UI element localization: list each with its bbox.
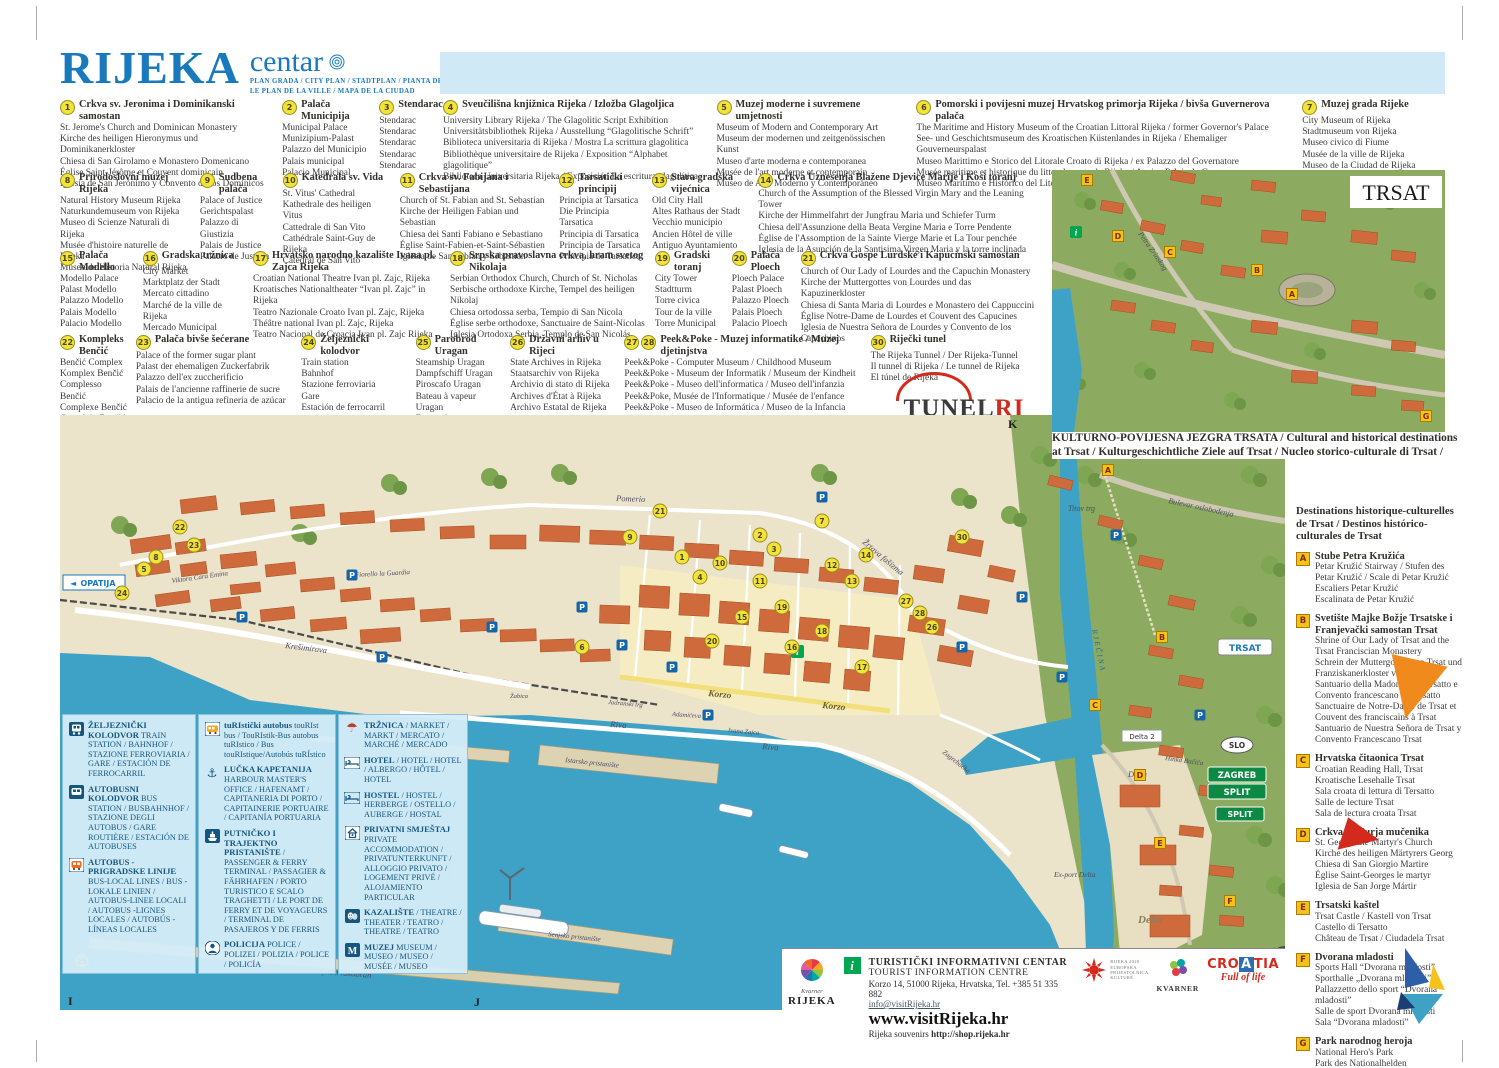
legend-number-badges: 3 (379, 100, 394, 115)
number-badge: 14 (758, 173, 773, 188)
svg-text:12: 12 (827, 561, 837, 570)
trsat-item-translations: National Hero's ParkPark des Nationalhel… (1315, 1048, 1420, 1068)
legend-translation-line: Biblioteca universitaria di Rijeka / Mos… (443, 138, 708, 149)
legend-item-title: Crkva sv. Jeronima i Dominikanski samost… (79, 99, 274, 122)
legend-translation-line: Natural History Museum Rijeka (60, 196, 192, 207)
croatia-slogan: Full of life (1207, 972, 1279, 983)
legend-number-badges: 2 (282, 100, 297, 115)
legend-translation-line: Palace of Justice (200, 196, 275, 207)
tic-title-hr: TURISTIČKI INFORMATIVNI CENTAR (869, 957, 1072, 968)
legend-item-title: Crkva Uznesenja Blažene Djevice Marije i… (777, 172, 1016, 184)
kvarner-rijeka-logo: Kvarner RIJEKA (788, 957, 836, 1007)
legend-translation-line: Chiesa di San Girolamo e Monastero Domen… (60, 157, 274, 168)
svg-text:P: P (1019, 593, 1025, 602)
number-badge: 6 (916, 100, 931, 115)
trsat-inset-map: TRSAT Petra Zrinskog i EDCBAG (1052, 170, 1445, 432)
legend-number-badges: 18 (450, 251, 465, 266)
svg-text:◄: ◄ (70, 579, 77, 588)
svg-text:C: C (1092, 701, 1098, 710)
legend-translation-line: Altes Rathaus der Stadt (652, 207, 750, 218)
svg-text:15: 15 (737, 613, 747, 622)
legend-translation-line: The Maritime and History Museum of the C… (916, 123, 1294, 134)
svg-text:13: 13 (847, 577, 857, 586)
legend-translation-line: Archivo Estatal de Rijeka (510, 403, 616, 414)
number-badge: 9 (200, 173, 215, 188)
tic-title-en: TOURIST INFORMATION CENTRE (869, 968, 1072, 978)
legend-translation-line: Universitätsbibliothek Rijeka / Ausstell… (443, 127, 708, 138)
localbus-icon (68, 858, 84, 873)
trsat-item-title: Park narodnog heroja (1315, 1036, 1420, 1048)
trsat-heading-line2: at Trsat / Kulturgeschichtliche Ziele au… (1052, 446, 1460, 460)
legend-number-badges: 30 (871, 335, 886, 350)
legend-item: 17 Hrvatsko narodno kazalište Ivana pl. … (253, 250, 450, 345)
svg-text:OPATIJA: OPATIJA (80, 579, 116, 588)
legend-translation-line: Estación de ferrocarril (301, 403, 407, 414)
legend-translation-line: Museo Marittimo e Storico del Litorale C… (916, 157, 1294, 168)
key-item-text: HARBOUR MASTER'S OFFICE / HAFENAMT / CAP… (224, 775, 329, 822)
legend-translation-line: Kathedrale des heiligen Vitus (283, 200, 392, 222)
legend-translation-line: City Museum of Rijeka (1302, 116, 1440, 127)
map-key-item: PUTNIČKO I TRAJEKTNO PRISTANIŠTE / PASSE… (204, 829, 330, 935)
svg-text:I: I (68, 994, 73, 1008)
legend-item-title: Željeznički kolodvor (320, 334, 407, 357)
legend-item: 20 Palača Ploech Ploech PalacePalast Plo… (732, 250, 801, 345)
legend-translation-line: Peek&Poke, Musée de l'Informatique / Mus… (624, 392, 862, 403)
legend-translation-line: Komplex Benčić (60, 369, 128, 380)
opatija-sign: ◄ OPATIJA (63, 575, 125, 590)
legend-item-translations: Serbian Orthodox Church, Church of St. N… (450, 274, 647, 341)
legend-translation-line: Marktplatz der Stadt (143, 278, 245, 289)
number-badge: 11 (400, 173, 415, 188)
map-key-item: M MUZEJ MUSEUM / MUSEO / MUSEO / MUSÉE /… (344, 943, 462, 972)
trsat-translation-line: Escaliers Petar Kružić (1315, 584, 1462, 595)
trsat-panel-subheading: Destinations historique-culturelles de T… (1296, 505, 1462, 543)
legend-translation-line: Mercato cittadino (143, 289, 245, 300)
svg-text:2: 2 (757, 531, 762, 540)
legend-item-translations: Municipal PalaceMunizipium-PalastPalazzo… (282, 123, 371, 179)
legend-number-badges: 21 (801, 251, 816, 266)
number-badge: 22 (60, 335, 75, 350)
legend-item-title: Palača Ploech (751, 250, 793, 273)
legend-item: 21 Crkva Gospe Lurdske i Kapucinski samo… (801, 250, 1045, 345)
inset-title: TRSAT (1362, 180, 1430, 205)
trsat-item-translations: Trsat Castle / Kastell von TrsatCastello… (1315, 912, 1444, 945)
keybox-harbour: tuRIstički autobus touRIst bus / TouRIst… (198, 714, 336, 974)
svg-text:17: 17 (857, 663, 867, 672)
hostel-icon (344, 791, 360, 806)
number-badge: 19 (655, 251, 670, 266)
legend-translation-line: Palacio de la antigua refineria de azúca… (136, 396, 293, 407)
legend-translation-line: Kroatisches Nationaltheater “Ivan pl. Za… (253, 285, 442, 307)
key-item-title: KAZALIŠTE (364, 907, 414, 917)
legend-translation-line: Gare (301, 392, 407, 403)
legend-translation-line: Bahnhof (301, 369, 407, 380)
legend-translation-line: Complesso Benčić (60, 380, 128, 402)
legend-item-title: Palača bivše šećerane (155, 334, 249, 346)
legend-translation-line: Peek&Poke - Museo dell'informatica / Mus… (624, 380, 862, 391)
trsat-translation-line: Chiesa di San Giorgio Martire (1315, 860, 1453, 871)
legend-number-badges: 9 (200, 173, 215, 188)
svg-text:Žabica: Žabica (510, 692, 528, 700)
legend-translation-line: St. Jerome's Church and Dominican Monast… (60, 123, 274, 134)
key-item-title: AUTOBUS - PRIGRADSKE LINIJE (88, 857, 176, 877)
legend-number-badges: 5 (717, 100, 732, 115)
legend-item-translations: City Museum of RijekaStadtmuseum von Rij… (1302, 116, 1440, 172)
svg-text:K: K (1008, 417, 1018, 431)
svg-text:Ex-port Delta: Ex-port Delta (1053, 870, 1096, 879)
trsat-item: C Hrvatska čitaonica Trsat Croatian Read… (1296, 753, 1462, 820)
legend-translation-line: Piroscafo Uragan (416, 380, 503, 391)
legend-translation-line: Palacio Ploech (732, 319, 793, 330)
legend-item-title: Riječki tunel (890, 334, 946, 346)
legend-item: 18 Srpska pravoslavna crkva, hram svetog… (450, 250, 655, 345)
svg-text:ZAGREB: ZAGREB (1218, 771, 1257, 781)
legend-translation-line: Tour de la ville (655, 308, 724, 319)
sails-logo (1385, 948, 1457, 1026)
svg-text:E: E (1157, 839, 1162, 848)
svg-text:Delta: Delta (1137, 914, 1163, 926)
svg-text:26: 26 (927, 623, 937, 632)
legend-number-badges: 4 (443, 100, 458, 115)
legend-item-translations: StendaracStendaracStendaracStendaracSten… (379, 116, 435, 172)
letter-badge: E (1296, 901, 1310, 915)
info-centre-icon: i (844, 957, 861, 974)
svg-text:TRSAT: TRSAT (1229, 644, 1262, 654)
svg-text:M: M (347, 946, 357, 957)
svg-text:21: 21 (655, 507, 665, 516)
legend-translation-line: Peek&Poke - Computer Museum / Childhood … (624, 358, 862, 369)
number-badge: 1 (60, 100, 75, 115)
letter-badge: G (1296, 1037, 1310, 1051)
legend-translation-line: Palazzo Modello (60, 296, 135, 307)
legend-item-title: Stendarac (398, 99, 443, 111)
legend-translation-line: Dampfschiff Uragan (416, 369, 503, 380)
delta2-sign: Delta 2 (1122, 730, 1162, 742)
legend-translation-line: See- und Geschichtsmuseum des Kroatische… (916, 134, 1294, 156)
svg-text:9: 9 (627, 533, 632, 542)
svg-text:P: P (1113, 531, 1119, 540)
legend-number-badges: 13 (652, 173, 667, 188)
legend-item-title: Muzej grada Rijeke (1321, 99, 1409, 111)
legend-translation-line: Vecchio municipio (652, 218, 750, 229)
svg-text:20: 20 (707, 637, 717, 646)
number-badge: 23 (136, 335, 151, 350)
letter-badge: C (1296, 754, 1310, 768)
legend-translation-line: Cattedrale di San Vito (283, 223, 392, 234)
trsat-translation-line: Kirche des heiligen Märtyrers Georg (1315, 849, 1453, 860)
legend-translation-line: Chiesa dei Santi Fabiano e Sebastiano (400, 230, 552, 241)
svg-text:G: G (1423, 412, 1430, 421)
map-key-item: tuRIstički autobus touRIst bus / TouRIst… (204, 721, 330, 759)
legend-translation-line: Kirche der Heiligen Fabian und Sebastian (400, 207, 552, 229)
legend-item-translations: Church of the Assumption of the Blessed … (758, 189, 1037, 256)
legend-number-badges: 26 (510, 335, 525, 350)
legend-translation-line: Kirche des heiligen Hieronymus und Domin… (60, 134, 274, 156)
legend-translation-line: Palazzo Ploech (732, 296, 793, 307)
legend-translation-line: Palais de l'ancienne raffinerie de sucre (136, 385, 293, 396)
legend-number-badges: 1 (60, 100, 75, 115)
trsat-item-title: Trsatski kaštel (1315, 900, 1444, 912)
trsat-translation-line: Sala de lectura croata Trsat (1315, 809, 1434, 820)
number-badge: 2 (282, 100, 297, 115)
number-badge: 24 (301, 335, 316, 350)
legend-translation-line: Palais Ploech (732, 308, 793, 319)
tic-website: www.visitRijeka.hr (869, 1009, 1009, 1028)
svg-text:P: P (239, 613, 245, 622)
legend-translation-line: Stendarac (379, 150, 435, 161)
svg-text:SPLIT: SPLIT (1224, 788, 1251, 798)
number-badge: 16 (143, 251, 158, 266)
svg-text:P: P (959, 643, 965, 652)
legend-translation-line: Museo civico di Fiume (1302, 138, 1440, 149)
tic-text-block: TURISTIČKI INFORMATIVNI CENTAR TOURIST I… (869, 957, 1072, 1039)
legend-item-title: Parobrod Uragan (435, 334, 503, 357)
svg-text:23: 23 (189, 541, 199, 550)
legend-translation-line: Ploech Palace (732, 274, 793, 285)
legend-item-title: Palača Municipija (301, 99, 371, 122)
key-item-title: tuRIstički autobus (224, 720, 292, 730)
legend-translation-line: Stadtmuseum von Rijeka (1302, 127, 1440, 138)
legend-item-translations: State Archives in RijekaStaatsarchiv von… (510, 358, 616, 414)
svg-text:SLO: SLO (1229, 741, 1245, 750)
legend-translation-line: Serbische orthodoxe Kirche, Tempel des h… (450, 285, 647, 307)
legend-translation-line: Naturkundemuseum von Rijeka (60, 207, 192, 218)
legend-translation-line: Stendarac (379, 127, 435, 138)
legend-item-title: Srpska pravoslavna crkva, hram svetog Ni… (469, 250, 647, 273)
legend-number-badges: 20 (732, 251, 747, 266)
legend-number-badges: 8 (60, 173, 75, 188)
map-key-item: AUTOBUS - PRIGRADSKE LINIJE BUS-LOCAL LI… (68, 858, 190, 935)
number-badge: 7 (1302, 100, 1317, 115)
legend-translation-line: Steamship Uragan (416, 358, 503, 369)
number-badge: 18 (450, 251, 465, 266)
souvenirs-url: http://shop.rijeka.hr (931, 1029, 1010, 1039)
trsat-translation-line: Kroatische Lesehalle Trsat (1315, 776, 1434, 787)
legend-item-title: Katedrala sv. Vida (302, 172, 384, 184)
svg-text:P: P (1197, 711, 1203, 720)
rijeka-city-map-page: RIJEKA centar PLAN GRADA / CITY PLAN / S… (0, 0, 1499, 1068)
legend-translation-line: Modello Palace (60, 274, 135, 285)
legend-item-translations: Modello PalacePalast ModelloPalazzo Mode… (60, 274, 135, 330)
svg-text:P: P (819, 493, 825, 502)
market-icon: ☂ (344, 721, 360, 736)
legend-translation-line: Complexe Benčić (60, 403, 128, 414)
legend-translation-line: Stendarac (379, 116, 435, 127)
legend-translation-line: Gerichtspalast (200, 207, 275, 218)
legend-item-title: Muzej moderne i suvremene umjetnosti (736, 99, 909, 122)
legend-item: 16 Gradska tržnica City MarketMarktplatz… (143, 250, 253, 345)
legend-translation-line: Bateau à vapeur Uragan (416, 392, 503, 414)
key-item-text: BUS-LOCAL LINES / BUS - LOKALE LINIEN / … (88, 877, 187, 934)
key-item-title: PRIVATNI SMJEŠTAJ (364, 824, 450, 834)
tourist-route-banner (440, 52, 1445, 94)
rijeka-logo-text: RIJEKA (788, 995, 836, 1007)
svg-text:E: E (1084, 176, 1089, 185)
svg-text:B: B (1159, 633, 1165, 642)
trsat-translation-line: St. George the Martyr's Church (1315, 838, 1453, 849)
city-title: RIJEKA (60, 46, 240, 90)
legend-translation-line: Marché de la ville de Rijeka (143, 301, 245, 323)
number-badge: 25 (416, 335, 431, 350)
svg-text:P: P (379, 653, 385, 662)
svg-text:18: 18 (817, 627, 827, 636)
trsat-panel-heading: KULTURNO-POVIJESNA JEZGRA TRSATA / Cultu… (1052, 432, 1460, 459)
legend-translation-line: Palacio Modello (60, 319, 135, 330)
legend-item-title: Hrvatsko narodno kazalište Ivana pl. Zaj… (272, 250, 442, 273)
legend-translation-line: Munizipium-Palast (282, 134, 371, 145)
legend-item-translations: Croatian National Theatre Ivan pl. Zajc,… (253, 274, 442, 341)
crop-mark (36, 6, 37, 40)
kvarner-circle-icon (1167, 957, 1189, 979)
legend-translation-line: Museo d'arte moderna e contemporanea (717, 157, 909, 168)
svg-text:F: F (1227, 897, 1232, 906)
key-item-title: ŽELJEZNIČKI KOLODVOR (88, 720, 147, 740)
legend-item-title: Prirodoslovni muzej Rijeka (79, 172, 192, 195)
key-item-title: HOTEL (364, 755, 395, 765)
legend-translation-line: Palais Modello (60, 308, 135, 319)
trsat-sign: TRSAT (1218, 639, 1272, 655)
map-key-item: POLICIJA POLICE / POLIZEI / POLIZIA / PO… (204, 940, 330, 969)
svg-text:P: P (349, 571, 355, 580)
legend-translation-line: Ancien Hôtel de ville (652, 230, 750, 241)
svg-text:7: 7 (819, 517, 824, 526)
trsat-item-translations: Croatian Reading Hall, TrsatKroatische L… (1315, 765, 1434, 820)
legend-translation-line: Museum der modernen und zeitgenössischen… (717, 134, 909, 156)
split-sign-2: SPLIT (1216, 807, 1264, 821)
key-item-title: POLICIJA (224, 939, 265, 949)
zagreb-sign: ZAGREB (1208, 767, 1266, 782)
trsat-item-title: Svetište Majke Božje Trsatske i Franjeva… (1315, 613, 1462, 636)
trsat-translation-line: Croatian Reading Hall, Trsat (1315, 765, 1434, 776)
svg-text:C: C (1167, 248, 1173, 257)
key-item-title: TRŽNICA (364, 720, 404, 730)
anchor-icon: ⚓ (204, 765, 220, 780)
legend-translation-line: The Rijeka Tunnel / Der Rijeka-Tunnel (871, 351, 1037, 362)
number-badge: 28 (641, 335, 656, 350)
trsat-translation-line: Park des Nationalhelden (1315, 1059, 1420, 1068)
number-badge: 15 (60, 251, 75, 266)
legend-translation-line: Kirche der Muttergottes von Lourdes und … (801, 278, 1037, 300)
touristbus-icon (204, 721, 220, 736)
svg-text:22: 22 (175, 523, 185, 532)
trsat-translation-line: Sala croata di lettura di Tersatto (1315, 787, 1434, 798)
trsat-translation-line: Escalinata de Petar Kružić (1315, 595, 1462, 606)
tic-email: info@visitRijeka.hr (869, 999, 941, 1009)
key-item-text: / PASSENGER & FERRY TERMINAL / PASSAGIER… (224, 848, 327, 934)
legend-item-translations: City TowerStadtturmTorre civicaTour de l… (655, 274, 724, 330)
trsat-item-title: Hrvatska čitaonica Trsat (1315, 753, 1434, 765)
trsat-translation-line: National Hero's Park (1315, 1048, 1420, 1059)
legend-item-title: Sudbena palača (219, 172, 275, 195)
legend-item-title: Tarsatički principij (578, 172, 644, 195)
train-icon (68, 721, 84, 736)
trsat-translation-line: Église Saint-Georges le martyr (1315, 871, 1453, 882)
legend-translation-line: Torre civica (655, 296, 724, 307)
svg-text:24: 24 (117, 589, 127, 598)
legend-item-translations: Ploech PalacePalast PloechPalazzo Ploech… (732, 274, 793, 330)
map-key-item: ☂ TRŽNICA / MARKET / MARKT / MERCATO / M… (344, 721, 462, 750)
svg-text:4: 4 (697, 573, 702, 582)
theatre-icon (344, 908, 360, 923)
legend-translation-line: Stazione ferroviaria (301, 380, 407, 391)
brand-header: RIJEKA centar PLAN GRADA / CITY PLAN / S… (60, 46, 488, 96)
svg-text:A: A (1105, 466, 1112, 475)
svg-text:30: 30 (957, 533, 967, 542)
number-badge: 27 (624, 335, 639, 350)
legend-translation-line: Municipal Palace (282, 123, 371, 134)
key-item-title: MUZEJ (364, 942, 394, 952)
svg-text:A: A (1289, 290, 1296, 299)
legend-translation-line: Benčić Complex (60, 358, 128, 369)
legend-number-badges: 7 (1302, 100, 1317, 115)
svg-text:11: 11 (755, 577, 765, 586)
svg-text:P: P (619, 641, 625, 650)
legend-translation-line: Chiesa dell'Assunzione della Beata Vergi… (758, 223, 1037, 234)
trsat-translation-line: Santuario de Nuestra Señora de Trsat y C… (1315, 724, 1462, 746)
letter-badge: F (1296, 953, 1310, 967)
number-badge: 26 (510, 335, 525, 350)
crop-mark (36, 1040, 37, 1062)
number-badge: 17 (253, 251, 268, 266)
svg-text:6: 6 (579, 643, 584, 652)
legend-translation-line: Church of Our Lady of Lourdes and the Ca… (801, 267, 1037, 278)
legend-number-badges: 10 (283, 173, 298, 188)
legend-item-title: Gradska tržnica (162, 250, 234, 262)
svg-text:19: 19 (777, 603, 787, 612)
svg-text:Titov trg: Titov trg (1068, 504, 1095, 513)
legend-number-badges: 15 (60, 251, 75, 266)
svg-text:16: 16 (787, 643, 797, 652)
legend-item-translations: City MarketMarktplatz der StadtMercato c… (143, 267, 245, 334)
legend-translation-line: Church of the Assumption of the Blessed … (758, 189, 1037, 211)
legend-item-title: Peek&Poke - Muzej informatike / Muzej dj… (660, 334, 862, 357)
split-sign: SPLIT (1208, 784, 1266, 799)
key-item-title: PUTNIČKO I TRAJEKTNO PRISTANIŠTE (224, 828, 281, 857)
svg-text:Delta 2: Delta 2 (1129, 733, 1154, 741)
svg-text:27: 27 (901, 597, 911, 606)
letter-badge: B (1296, 614, 1310, 628)
legend-translation-line: Palast der ehemaligen Zuckerfabrik (136, 362, 293, 373)
legend-translation-line: Teatro Nazionale Croato Ivan pl. Zajc, R… (253, 308, 442, 319)
ferry-icon (204, 829, 220, 844)
svg-text:10: 10 (715, 559, 725, 568)
svg-text:28: 28 (915, 609, 925, 618)
number-badge: 4 (443, 100, 458, 115)
svg-text:D: D (1137, 771, 1144, 780)
number-badge: 10 (283, 173, 298, 188)
legend-translation-line: Palazzo dell'ex zuccherificio (136, 373, 293, 384)
legend-translation-line: Archives d'État à Rijeka (510, 392, 616, 403)
legend-translation-line: Musée de la ville de Rijeka (1302, 150, 1440, 161)
legend-translation-line: Théâtre national Ivan pl. Zajc, Rijeka (253, 319, 442, 330)
key-item-title: LUČKA KAPETANIJA (224, 764, 312, 774)
legend-translation-line: Palais municipal (282, 157, 371, 168)
legend-translation-line: Serbian Orthodox Church, Church of St. N… (450, 274, 647, 285)
legend-translation-line: Église serbe orthodoxe, Sanctuaire de Sa… (450, 319, 647, 330)
legend-translation-line: Kirche der Himmelfahrt der Jungfrau Mari… (758, 211, 1037, 222)
legend-translation-line: Stendarac (379, 161, 435, 172)
legend-number-badges: 12 (559, 173, 574, 188)
legend-translation-line: Palazzo di Giustizia (200, 218, 275, 240)
kvarner-text: KVARNER (1157, 984, 1200, 993)
legend-translation-line: Chiesa di Santa Maria di Lourdes e Monas… (801, 301, 1037, 312)
trsat-item: G Park narodnog heroja National Hero's P… (1296, 1036, 1462, 1068)
number-badge: 12 (559, 173, 574, 188)
trsat-translation-line: Petar Kružić Stairway / Stufen des Petar… (1315, 562, 1462, 584)
legend-translation-line: Train station (301, 358, 407, 369)
legend-translation-line: Old City Hall (652, 196, 750, 207)
map-key-item: PRIVATNI SMJEŠTAJ PRIVATE ACCOMMODATION … (344, 825, 462, 902)
